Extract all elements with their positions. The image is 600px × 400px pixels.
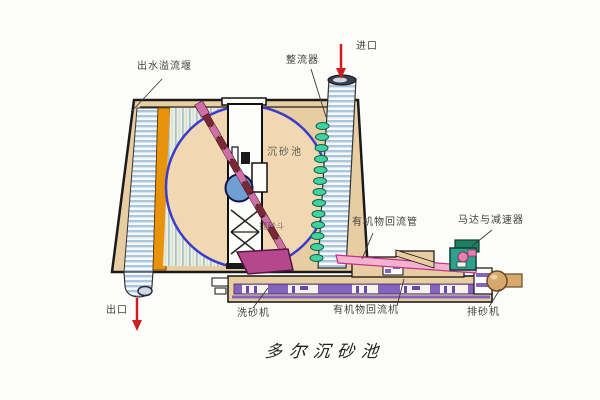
label-flow-straightener: 整流器 [286, 56, 319, 66]
label-effluent-weir: 出水溢流堰 [137, 62, 192, 72]
label-organic-return-machine: 有机物回流机 [333, 306, 399, 316]
inlet-arrow [336, 44, 346, 79]
label-inlet: 进口 [356, 42, 378, 52]
motor-reducer-unit [450, 240, 479, 270]
label-organic-return-pipe: 有机物回流管 [352, 218, 418, 228]
grit-chamber-diagram: 出水溢流堰 整流器 进口 沉砂池 提砂斗 有机物回流管 马达与减速器 出口 洗砂… [0, 0, 600, 400]
label-grit-chamber: 沉砂池 [267, 148, 303, 158]
discharge-wheel [487, 271, 522, 291]
label-sand-washer: 洗砂机 [237, 309, 270, 319]
diagram-title: 多尔沉砂池 [254, 342, 396, 362]
outlet-arrow [132, 298, 142, 331]
outlet-pipe [124, 272, 153, 297]
label-motor-reducer: 马达与减速器 [458, 216, 524, 226]
label-bucket-elevator: 提砂斗 [259, 223, 285, 232]
scraper [237, 249, 293, 274]
label-sand-discharger: 排砂机 [467, 308, 500, 318]
label-outlet: 出口 [106, 306, 128, 316]
